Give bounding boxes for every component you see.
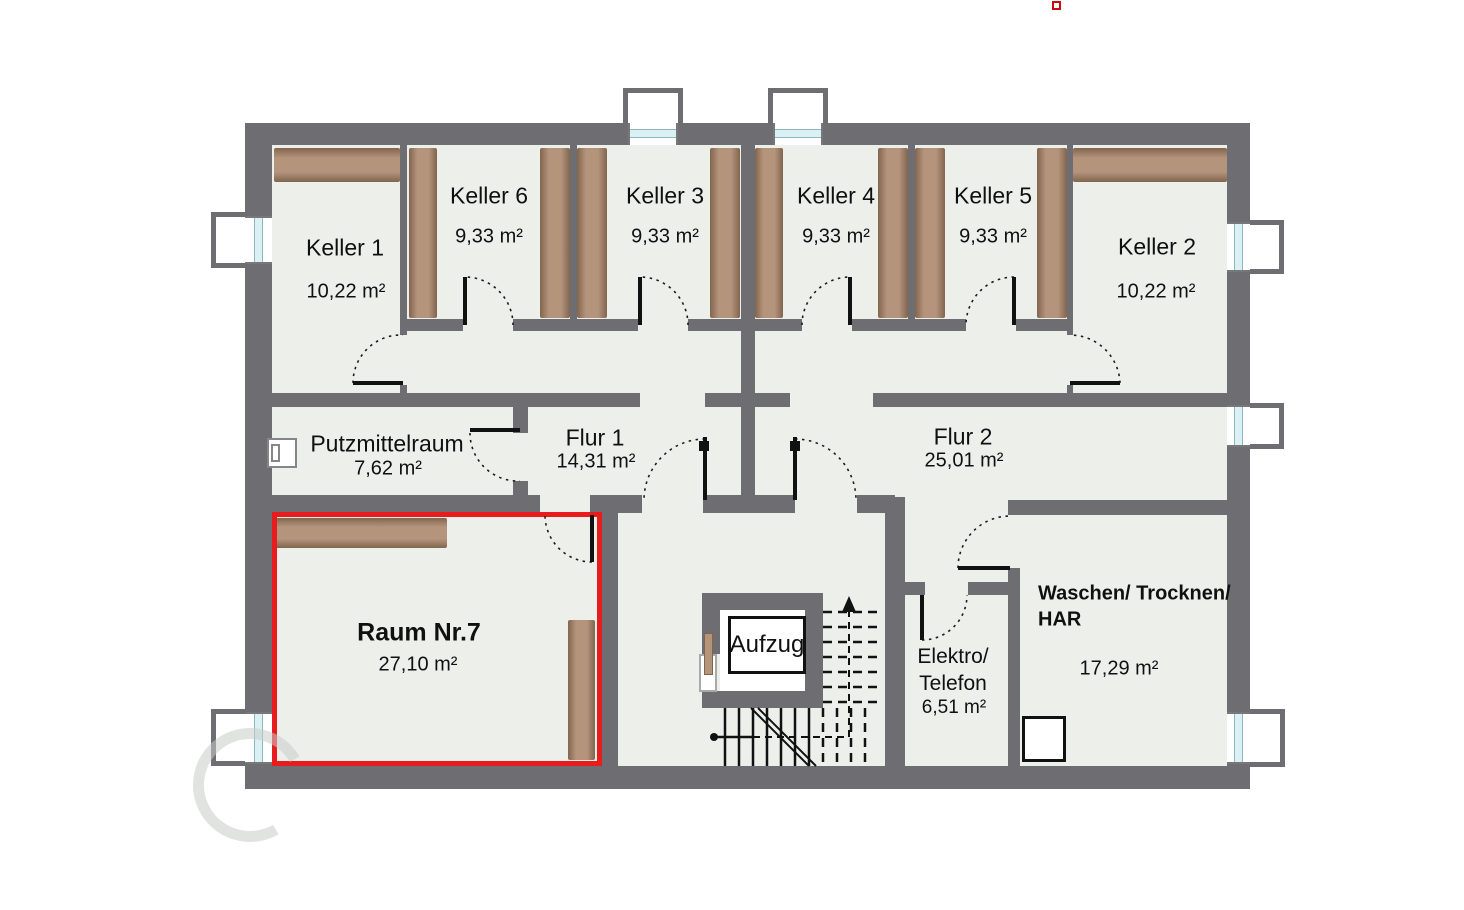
wall-stairhall-left	[602, 513, 618, 766]
light-well-top-2	[768, 88, 828, 123]
lift-door-panel	[704, 633, 713, 675]
room-label-elektro-line1: Elektro/	[917, 645, 988, 669]
wall-keller6-keller3	[570, 145, 577, 331]
room-area-raum7: 27,10 m²	[379, 654, 458, 677]
room-area-waschen: 17,29 m²	[1080, 658, 1159, 681]
wall-keller-row	[1016, 319, 1067, 331]
wall-outer-bottom	[245, 766, 1250, 789]
light-well-left-1	[211, 212, 245, 268]
shelf-keller6-right	[540, 148, 570, 318]
light-well-right-3	[1250, 709, 1285, 767]
room-label-flur2: Flur 2	[934, 424, 993, 451]
wall-corridor	[272, 393, 640, 407]
waschen-pit-box	[1022, 716, 1066, 762]
room-label-keller3: Keller 3	[626, 183, 704, 210]
shelf-keller5-right	[1037, 148, 1067, 318]
room-area-flur2: 25,01 m²	[925, 450, 1004, 473]
light-well-right-2	[1250, 403, 1284, 449]
room-label-elektro-line2: Telefon	[919, 672, 987, 696]
room-label-keller4: Keller 4	[797, 183, 875, 210]
room-label-putzmittelraum: Putzmittelraum	[310, 431, 463, 458]
window-keller1	[245, 216, 272, 264]
window-keller3	[628, 123, 678, 145]
room-area-keller5: 9,33 m²	[959, 226, 1027, 249]
room-label-keller1: Keller 1	[306, 235, 384, 262]
room-area-keller1: 10,22 m²	[307, 281, 386, 304]
wall-putz-divider	[513, 481, 528, 495]
room-label-keller2: Keller 2	[1118, 234, 1196, 261]
shelf-keller2	[1073, 148, 1227, 182]
wall-keller-row	[688, 319, 802, 331]
shelf-keller4-left	[755, 148, 783, 318]
wall-keller-row	[852, 319, 966, 331]
room-label-keller5: Keller 5	[954, 183, 1032, 210]
shelf-keller3-right	[710, 148, 740, 318]
wall-elektro-top	[905, 582, 925, 595]
window-keller4	[773, 123, 823, 145]
window-waschen	[1227, 712, 1250, 764]
shelf-keller6-left	[409, 148, 437, 318]
wall-keller-row	[513, 319, 638, 331]
wall-keller-row	[407, 319, 463, 331]
room-area-elektro: 6,51 m²	[922, 697, 986, 719]
wall-corridor	[873, 393, 1227, 407]
floor-plan: Keller 1 10,22 m² Keller 6 9,33 m² Kelle…	[0, 0, 1464, 910]
wall-elektro-top	[968, 582, 1008, 595]
wall-stairhall-right	[885, 497, 905, 766]
wall-lift-top	[702, 593, 823, 610]
room-area-keller2: 10,22 m²	[1117, 281, 1196, 304]
window-flur2	[1227, 405, 1250, 447]
room-label-flur1: Flur 1	[566, 425, 625, 452]
room-label-aufzug: Aufzug	[730, 631, 805, 659]
wall-elektro-waschen	[1008, 568, 1020, 766]
shelf-keller1	[274, 148, 400, 182]
room-area-keller3: 9,33 m²	[631, 226, 699, 249]
room-label-keller6: Keller 6	[450, 183, 528, 210]
putz-fixture-inner	[271, 444, 280, 462]
room-label-waschen-line2: HAR	[1038, 609, 1081, 632]
room-label-raum7: Raum Nr.7	[357, 619, 481, 648]
room-area-keller6: 9,33 m²	[455, 226, 523, 249]
wall-keller1-right	[400, 145, 407, 335]
wall-outer-top	[245, 123, 1250, 145]
wall-lower-band	[590, 495, 642, 513]
wall-lower-band	[245, 495, 540, 513]
wall-lift-bottom	[702, 691, 823, 708]
room-area-putzmittelraum: 7,62 m²	[354, 458, 422, 481]
wall-keller1-right-stub	[400, 385, 407, 393]
wall-lower-band	[703, 495, 795, 513]
shelf-keller4-right	[878, 148, 908, 318]
room-area-keller4: 9,33 m²	[802, 226, 870, 249]
wall-putz-divider	[513, 407, 528, 433]
room-area-flur1: 14,31 m²	[557, 451, 636, 474]
light-well-right-1	[1250, 220, 1284, 274]
window-keller2	[1227, 222, 1250, 272]
red-marker-icon	[1052, 1, 1061, 10]
shelf-keller5-left	[915, 148, 945, 318]
wall-keller4-keller5	[908, 145, 915, 331]
room-label-waschen-line1: Waschen/ Trocknen/	[1038, 583, 1231, 606]
shelf-keller3-left	[577, 148, 607, 318]
wall-corridor	[705, 393, 790, 407]
wall-lift-right	[805, 610, 823, 691]
wall-waschen-top	[1008, 500, 1227, 515]
wall-keller2-left-stub	[1067, 385, 1073, 393]
light-well-top-1	[623, 88, 683, 123]
